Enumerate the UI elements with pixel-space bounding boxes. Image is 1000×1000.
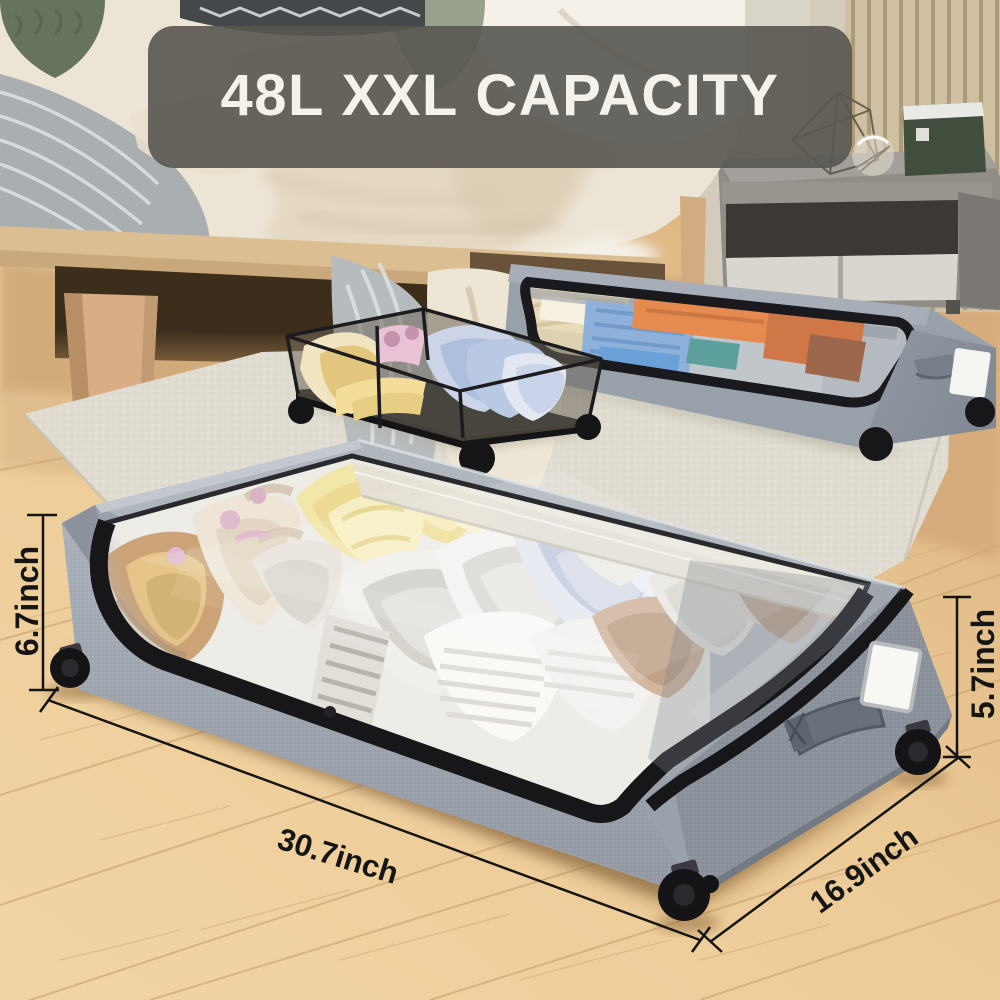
svg-text:5.7inch: 5.7inch (965, 609, 1000, 719)
svg-text:6.7inch: 6.7inch (9, 546, 45, 656)
svg-text:48L XXL CAPACITY: 48L XXL CAPACITY (220, 63, 779, 128)
